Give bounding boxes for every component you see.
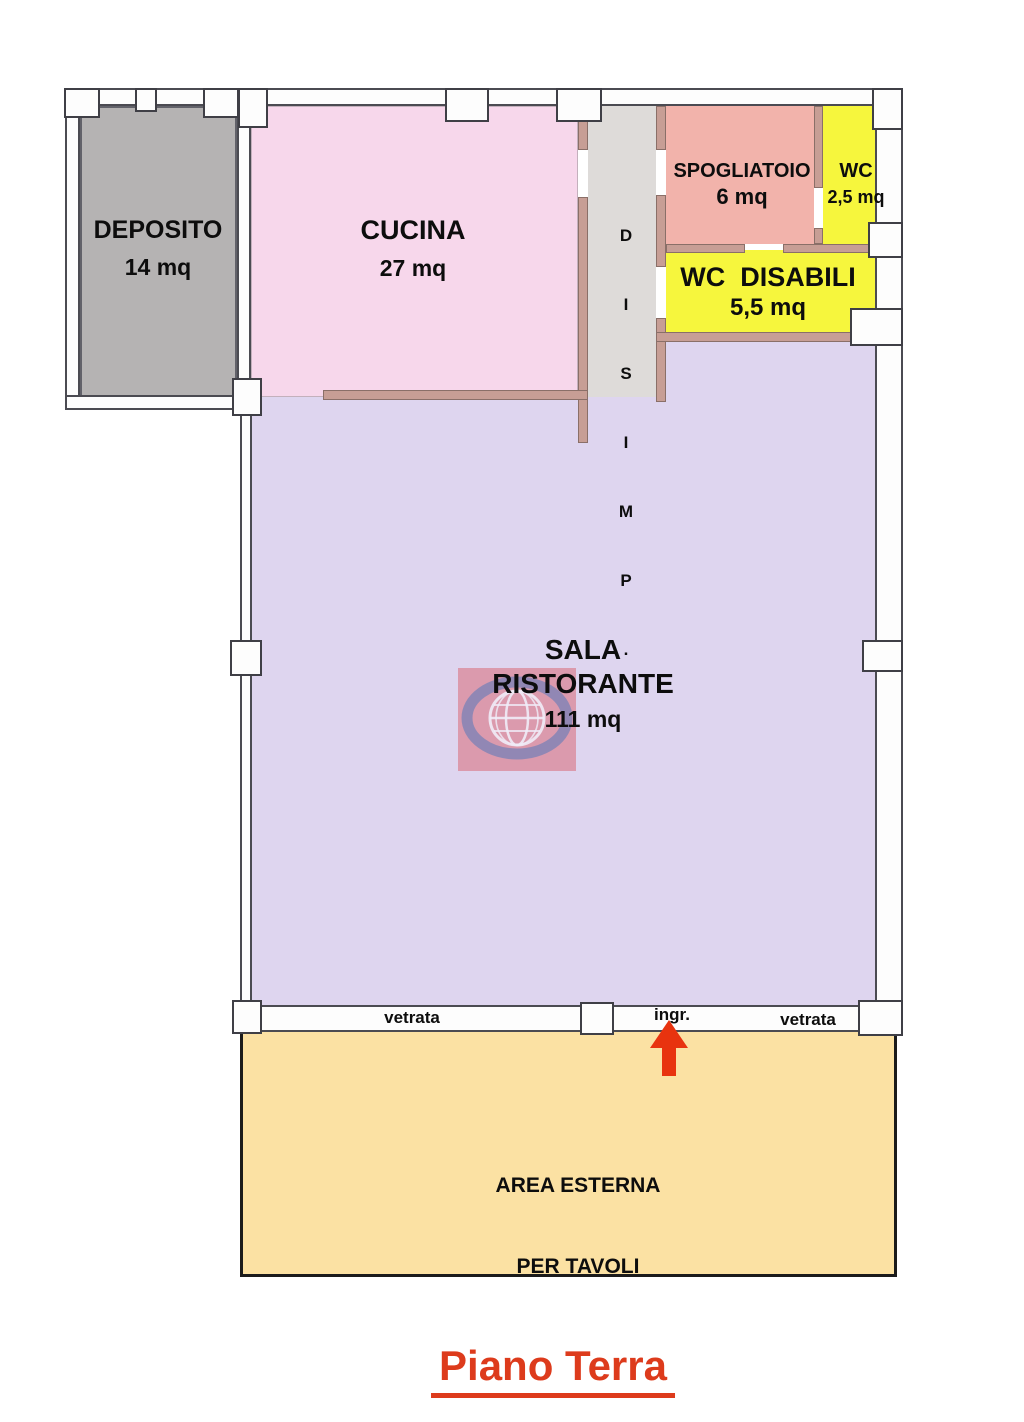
label-cucina-area: 27 mq <box>380 255 446 281</box>
room-cucina <box>251 106 578 397</box>
label-disimpegno-letter: I <box>617 293 636 316</box>
pillar-right-1 <box>868 222 903 258</box>
label-area-esterna-line1: AREA ESTERNA <box>496 1172 661 1199</box>
label-cucina-name: CUCINA <box>361 215 466 246</box>
label-disimpegno-letter: P <box>617 569 636 592</box>
label-vetrata-right: vetrata <box>780 1010 836 1030</box>
pillar-sala-bottom-left <box>232 1000 262 1034</box>
page-title: Piano Terra <box>431 1342 675 1398</box>
wall-under-wc <box>783 244 875 253</box>
wall-deposito-cucina <box>237 104 251 397</box>
wall-disimpegno-right-a <box>656 106 666 150</box>
pillar-right-2 <box>850 308 903 346</box>
pillar-top-disimpegno <box>556 88 602 122</box>
label-spogliatoio-name: SPOGLIATOIO <box>673 160 810 183</box>
label-wc-name: WC <box>839 160 872 183</box>
pillar-top-4 <box>445 88 489 122</box>
label-wc-area: 2,5 mq <box>827 187 884 208</box>
pillar-top-3 <box>238 88 268 128</box>
pillar-right-mid <box>862 640 903 672</box>
label-deposito-name: DEPOSITO <box>94 216 223 245</box>
wall-left-deposito <box>65 100 80 410</box>
wall-spogliatoio-wc-lower <box>814 228 823 244</box>
pillar-top-left-corner <box>64 88 100 118</box>
label-wc-disabili-name: WC DISABILI <box>680 262 856 293</box>
label-wc-disabili-area: 5,5 mq <box>730 294 806 322</box>
label-disimpegno: D I S I M P . <box>617 178 636 707</box>
wall-disimpegno-right-b <box>656 195 666 267</box>
entrance-arrow-shaft <box>662 1046 676 1076</box>
room-sala-ristorante-ext <box>666 341 875 399</box>
pillar-bottom-center <box>580 1002 614 1035</box>
wall-deposito-bottom <box>65 395 257 410</box>
label-disimpegno-letter: M <box>617 500 636 523</box>
wall-under-spogliatoio <box>666 244 745 253</box>
wall-sala-left <box>240 397 252 1009</box>
label-vetrata-left: vetrata <box>384 1008 440 1028</box>
label-disimpegno-letter: I <box>617 431 636 454</box>
label-sala-area: 111 mq <box>545 706 622 732</box>
floor-plan: DEPOSITO 14 mq CUCINA 27 mq D I S I M P … <box>0 0 1024 1422</box>
wall-disimpegno-left-lower <box>578 197 588 443</box>
label-sala-name-2: RISTORANTE <box>492 668 674 700</box>
pillar-top-right-corner <box>872 88 903 130</box>
label-area-esterna: AREA ESTERNA PER TAVOLI <box>496 1118 661 1334</box>
pillar-top-2 <box>203 88 239 118</box>
wall-cucina-sala <box>323 390 588 400</box>
pillar-top-1 <box>135 88 157 112</box>
room-deposito <box>80 106 237 397</box>
pillar-sala-left-mid <box>230 640 262 676</box>
label-disimpegno-letter: D <box>617 224 636 247</box>
label-disimpegno-letter: S <box>617 362 636 385</box>
label-sala-name-1: SALA <box>545 634 621 666</box>
label-spogliatoio-area: 6 mq <box>716 184 767 209</box>
pillar-sala-top-left <box>232 378 262 416</box>
wall-spogliatoio-wc-upper <box>814 106 823 188</box>
wall-disimpegno-right-c <box>656 318 666 402</box>
wall-wc-disabili-bottom <box>656 332 862 342</box>
entrance-arrow-icon <box>650 1020 688 1048</box>
label-deposito-area: 14 mq <box>125 254 191 280</box>
label-area-esterna-line2: PER TAVOLI <box>496 1253 661 1280</box>
pillar-bottom-right-corner <box>858 1000 903 1036</box>
